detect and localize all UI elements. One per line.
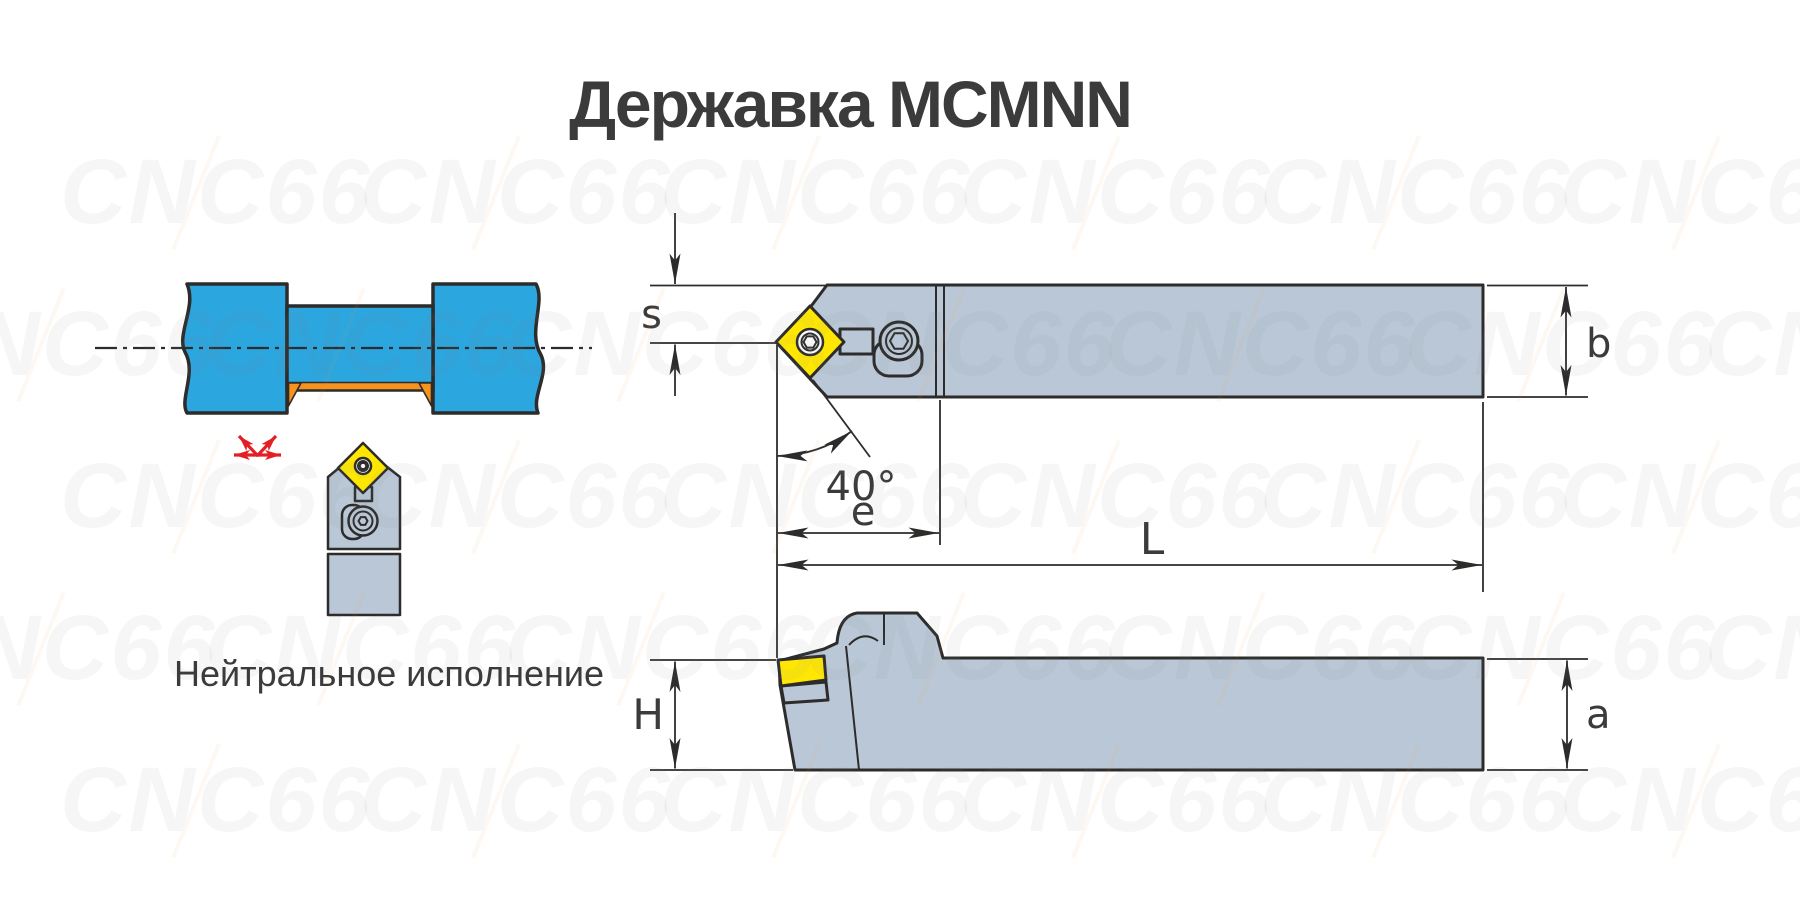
- machined-surface-right-fillet: [419, 383, 432, 406]
- insert-front: [778, 656, 826, 686]
- dim-label-L: L: [1140, 514, 1165, 565]
- dimension-b: b: [1487, 286, 1611, 398]
- page-title: Державка MCMNN: [569, 66, 1131, 142]
- dim-label-e: e: [851, 489, 876, 535]
- dimension-a: a: [1487, 659, 1611, 770]
- holder-plan-view: [776, 285, 1483, 397]
- workpiece-illustration: [95, 284, 592, 413]
- machined-surface-left-fillet: [289, 383, 302, 406]
- dim-label-a: a: [1586, 692, 1611, 738]
- angle-arc: [777, 431, 852, 456]
- holder-front-view: [778, 613, 1483, 770]
- dim-label-b: b: [1586, 321, 1611, 367]
- workpiece-left-section: [183, 284, 287, 413]
- tool-shank-small: [328, 554, 400, 615]
- dim-label-H: H: [632, 690, 664, 739]
- technical-drawing-page: CNC66CNC66CNC66CNC66CNC66CNC66CNC66CNC66…: [0, 0, 1800, 917]
- tool-plan-view-small: [328, 443, 400, 615]
- tool-orientation-caption: Нейтральное исполнение: [174, 653, 604, 695]
- dimension-H: H: [632, 660, 793, 770]
- feed-arrow-up-right: [257, 436, 276, 456]
- machined-surface-strip: [289, 383, 431, 391]
- feed-direction-arrows: [234, 436, 281, 456]
- feed-arrow-up-left: [239, 436, 258, 456]
- dim-label-s: s: [641, 292, 662, 338]
